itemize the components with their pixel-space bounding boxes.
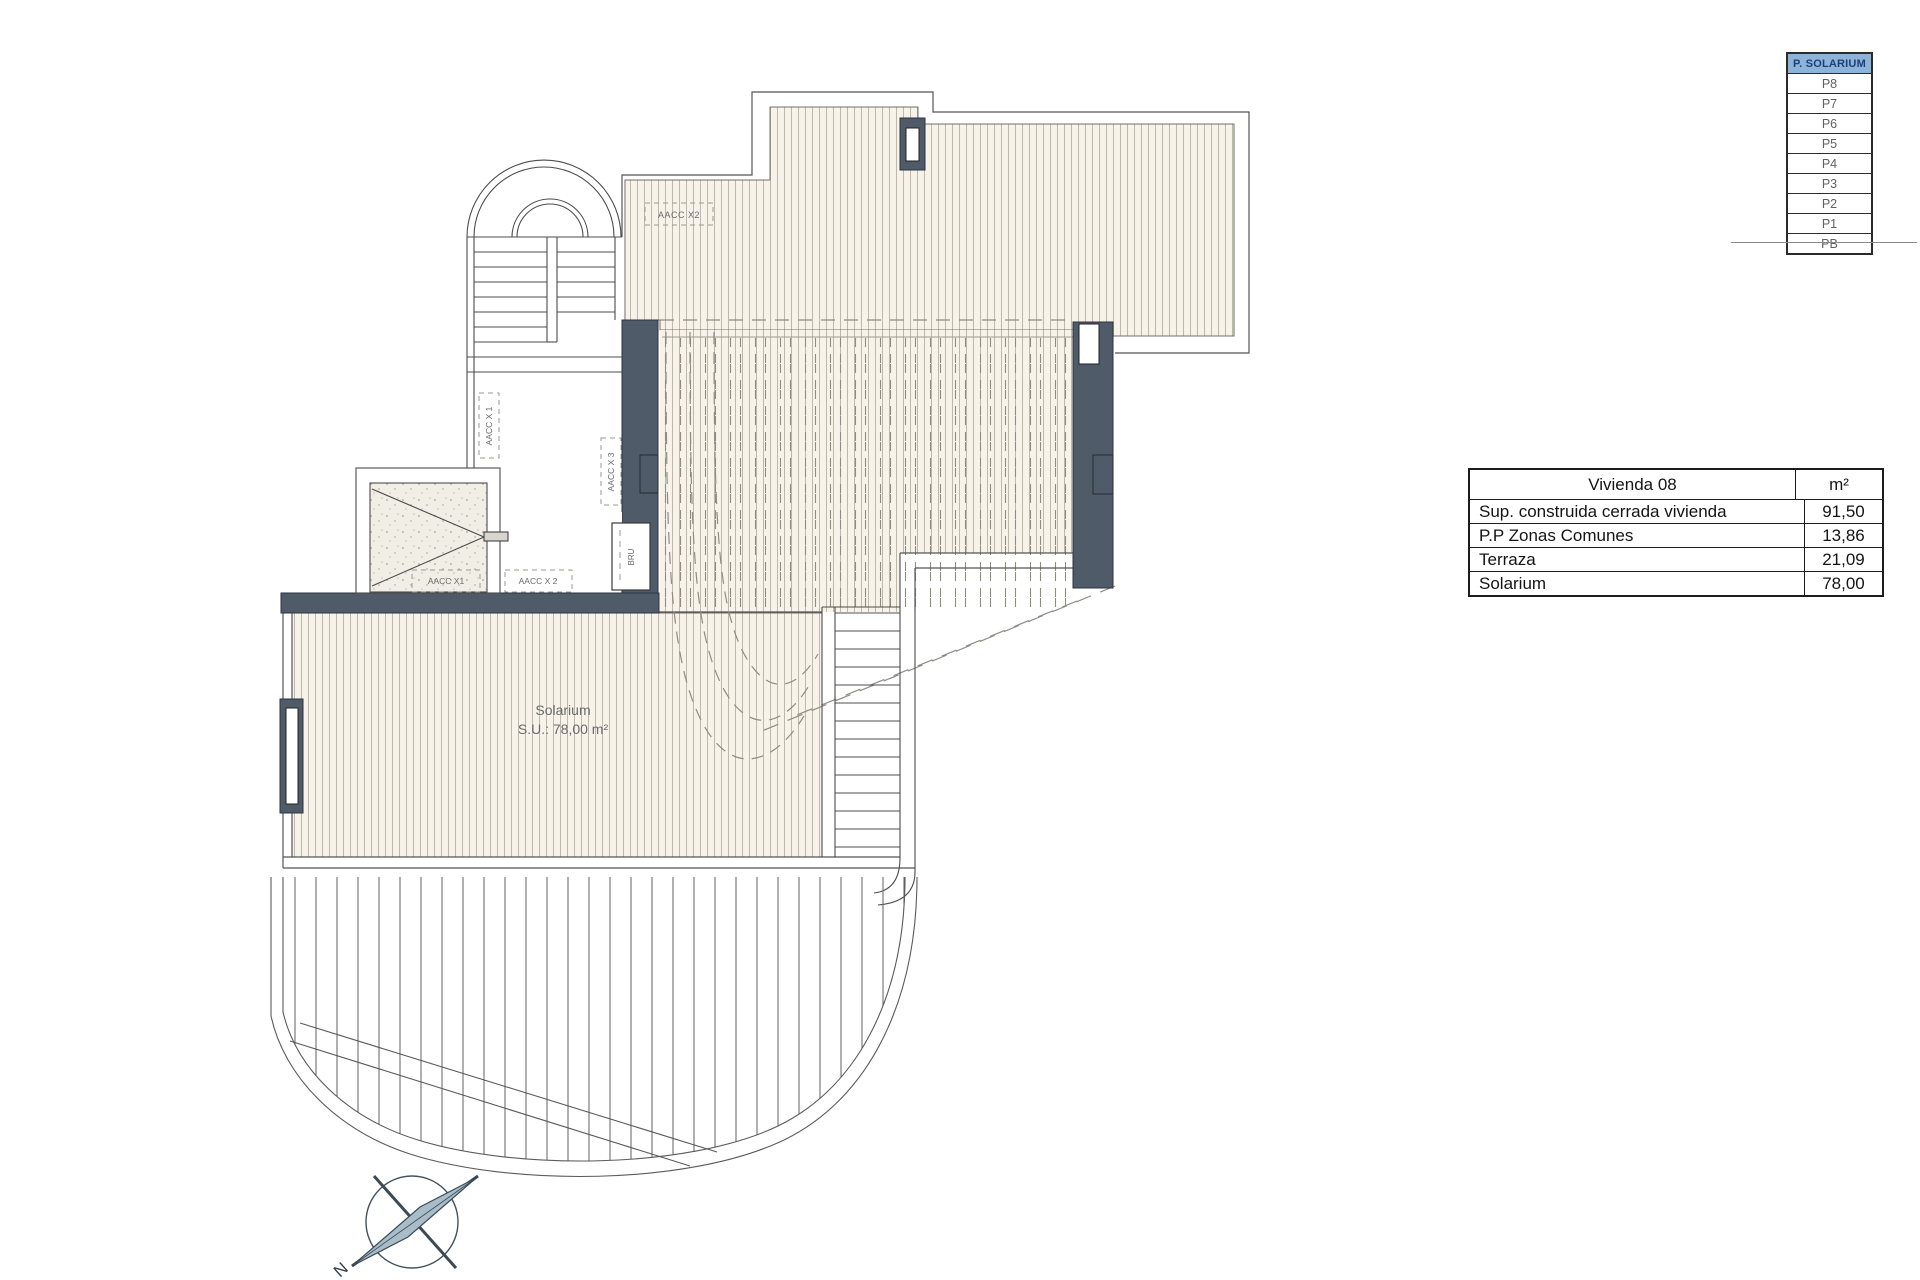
area-row-label: Terraza xyxy=(1470,548,1805,571)
aacc-bottom-label: AACC X 2 xyxy=(519,576,558,586)
wall-bottom xyxy=(281,593,659,613)
solarium-label: Solarium xyxy=(535,702,590,718)
areas-table: Vivienda 08 m² Sup. construida cerrada v… xyxy=(1468,468,1884,597)
aacc-left-label: AACC X 1 xyxy=(484,406,494,445)
floor-selector-table: P. SOLARIUM P8 P7 P6 P5 P4 P3 P2 P1 PB xyxy=(1786,52,1873,255)
floor-current: P. SOLARIUM xyxy=(1788,54,1871,74)
floor-row: P2 xyxy=(1788,194,1871,214)
floor-row: P4 xyxy=(1788,154,1871,174)
area-row-value: 21,09 xyxy=(1805,548,1882,571)
floor-plan-sheet: Solarium S.U.: 78,00 m² AACC X2 AACC X 1… xyxy=(0,0,1920,1280)
upper-deck-hatch xyxy=(625,107,1234,336)
aacc-bottom-left-label: AACC X1 xyxy=(428,576,465,586)
ground-line xyxy=(1731,242,1917,243)
machine-room xyxy=(356,372,508,593)
solarium-area-label: S.U.: 78,00 m² xyxy=(518,721,609,737)
lower-terrace xyxy=(271,877,917,1176)
area-row-label: Sup. construida cerrada vivienda xyxy=(1470,500,1805,523)
area-row-value: 91,50 xyxy=(1805,500,1882,523)
areas-table-unit: m² xyxy=(1796,470,1882,499)
north-compass-icon: N xyxy=(330,1176,478,1280)
railing-posts xyxy=(283,877,905,1161)
floor-plan-drawing: Solarium S.U.: 78,00 m² AACC X2 AACC X 1… xyxy=(0,0,1920,1280)
floor-row: P7 xyxy=(1788,94,1871,114)
floor-row: P1 xyxy=(1788,214,1871,234)
north-label: N xyxy=(330,1259,352,1280)
area-row-value: 78,00 xyxy=(1805,572,1882,595)
floor-row: P5 xyxy=(1788,134,1871,154)
aacc-right-label: AACC X 3 xyxy=(606,452,616,491)
stair-down xyxy=(822,607,915,905)
areas-table-title: Vivienda 08 xyxy=(1470,470,1796,499)
floor-row: PB xyxy=(1788,234,1871,253)
right-wall-window xyxy=(1079,324,1099,364)
floor-row: P6 xyxy=(1788,114,1871,134)
stair-up xyxy=(467,160,622,372)
area-row-label: P.P Zonas Comunes xyxy=(1470,524,1805,547)
area-row-value: 13,86 xyxy=(1805,524,1882,547)
bru-label: BRU xyxy=(627,548,636,565)
floor-row: P8 xyxy=(1788,74,1871,94)
hidden-deck-dashes xyxy=(662,337,1073,612)
aacc-top-label: AACC X2 xyxy=(658,210,700,220)
area-row-label: Solarium xyxy=(1470,572,1805,595)
floor-row: P3 xyxy=(1788,174,1871,194)
